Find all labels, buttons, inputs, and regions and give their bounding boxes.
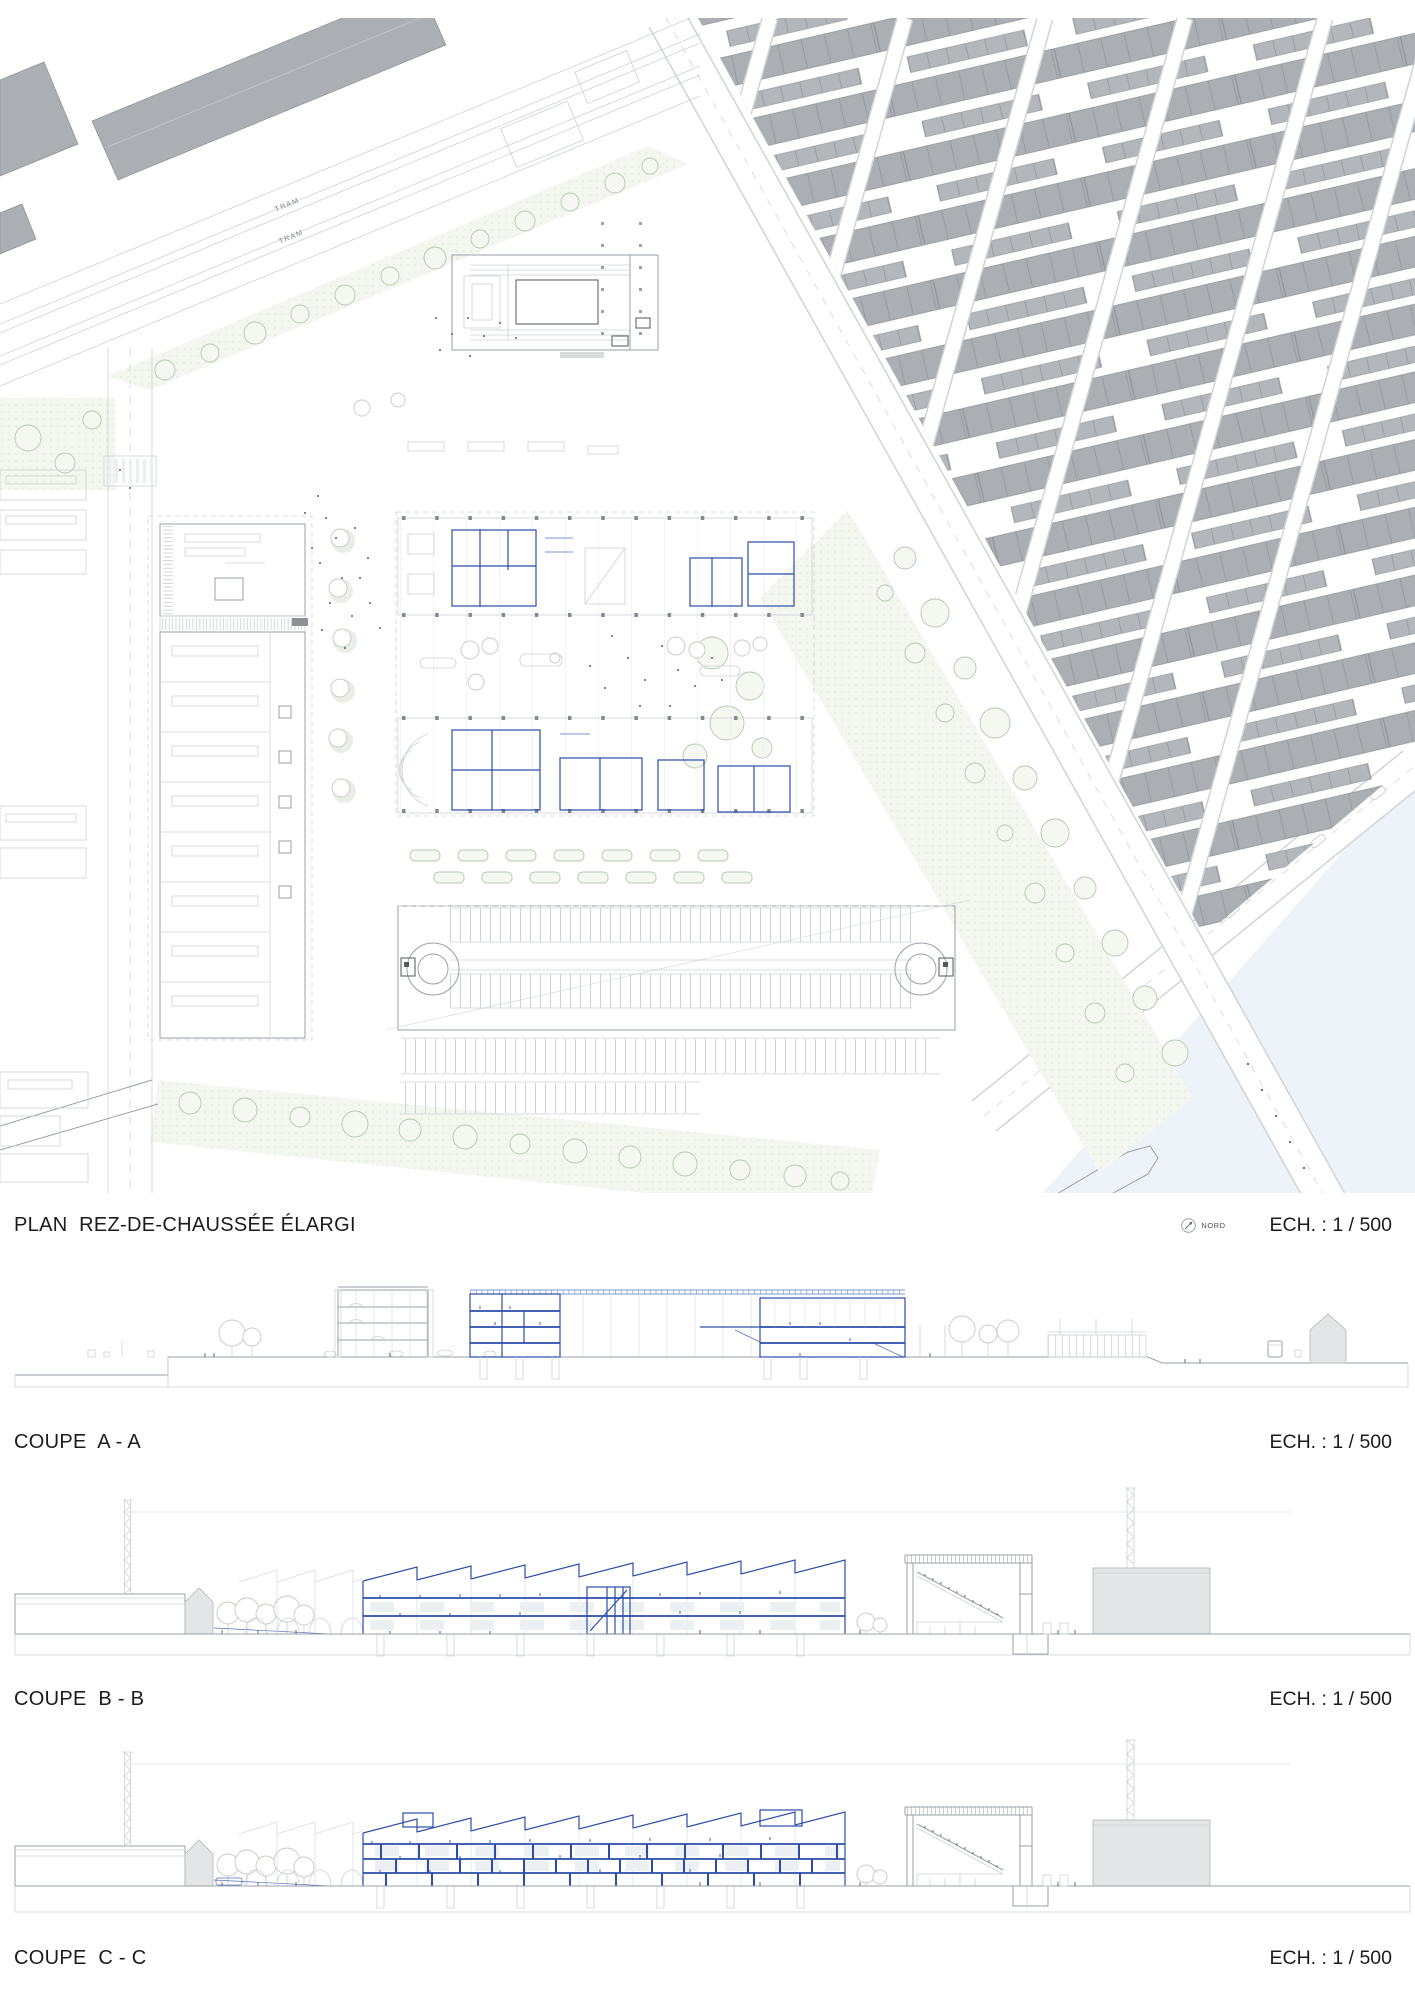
section-a-caption-row: COUPE A - A ECH. : 1 / 500 — [0, 1402, 1415, 1459]
section-b-caption-row: COUPE B - B ECH. : 1 / 500 — [0, 1659, 1415, 1716]
blue-building-section-b — [363, 1560, 845, 1656]
blue-building-section-a — [470, 1290, 905, 1379]
big-box-section — [1093, 1740, 1210, 1886]
plan-scale-label: ECH. : 1 / 500 — [1270, 1214, 1392, 1237]
site-plan-drawing: TRAM TRAM — [0, 18, 1415, 1193]
north-label: NORD — [1201, 1221, 1225, 1230]
tribune-section — [905, 1555, 1048, 1654]
section-a-content — [15, 1287, 1408, 1387]
blue-building-section-c — [363, 1810, 845, 1908]
big-box-section — [1093, 1488, 1210, 1634]
north-indicator: NORD — [1180, 1217, 1225, 1234]
gray-building-section — [335, 1287, 433, 1357]
drawing-sheet: TRAM TRAM — [0, 0, 1415, 2000]
north-compass-icon — [1180, 1217, 1197, 1234]
section-a-drawing — [0, 1242, 1415, 1402]
section-b-content — [15, 1488, 1410, 1656]
section-c-content — [15, 1740, 1410, 1912]
gabled-house-section — [1310, 1314, 1346, 1363]
section-c-caption-row: COUPE C - C ECH. : 1 / 500 — [0, 1918, 1415, 1975]
section-b-title: COUPE B - B — [14, 1688, 144, 1711]
section-b-scale-label: ECH. : 1 / 500 — [1270, 1688, 1392, 1711]
section-a-title: COUPE A - A — [14, 1431, 141, 1454]
section-b-drawing — [0, 1459, 1415, 1659]
section-a-scale-label: ECH. : 1 / 500 — [1270, 1431, 1392, 1454]
greenhouse-section — [1048, 1319, 1146, 1357]
plan-caption-row: PLAN REZ-DE-CHAUSSÉE ÉLARGI NORD ECH. : … — [0, 1193, 1415, 1242]
section-c-drawing — [0, 1716, 1415, 1918]
tribune-section — [905, 1807, 1048, 1906]
plan-title: PLAN REZ-DE-CHAUSSÉE ÉLARGI — [14, 1214, 356, 1237]
section-c-title: COUPE C - C — [14, 1947, 147, 1970]
section-c-scale-label: ECH. : 1 / 500 — [1270, 1947, 1392, 1970]
